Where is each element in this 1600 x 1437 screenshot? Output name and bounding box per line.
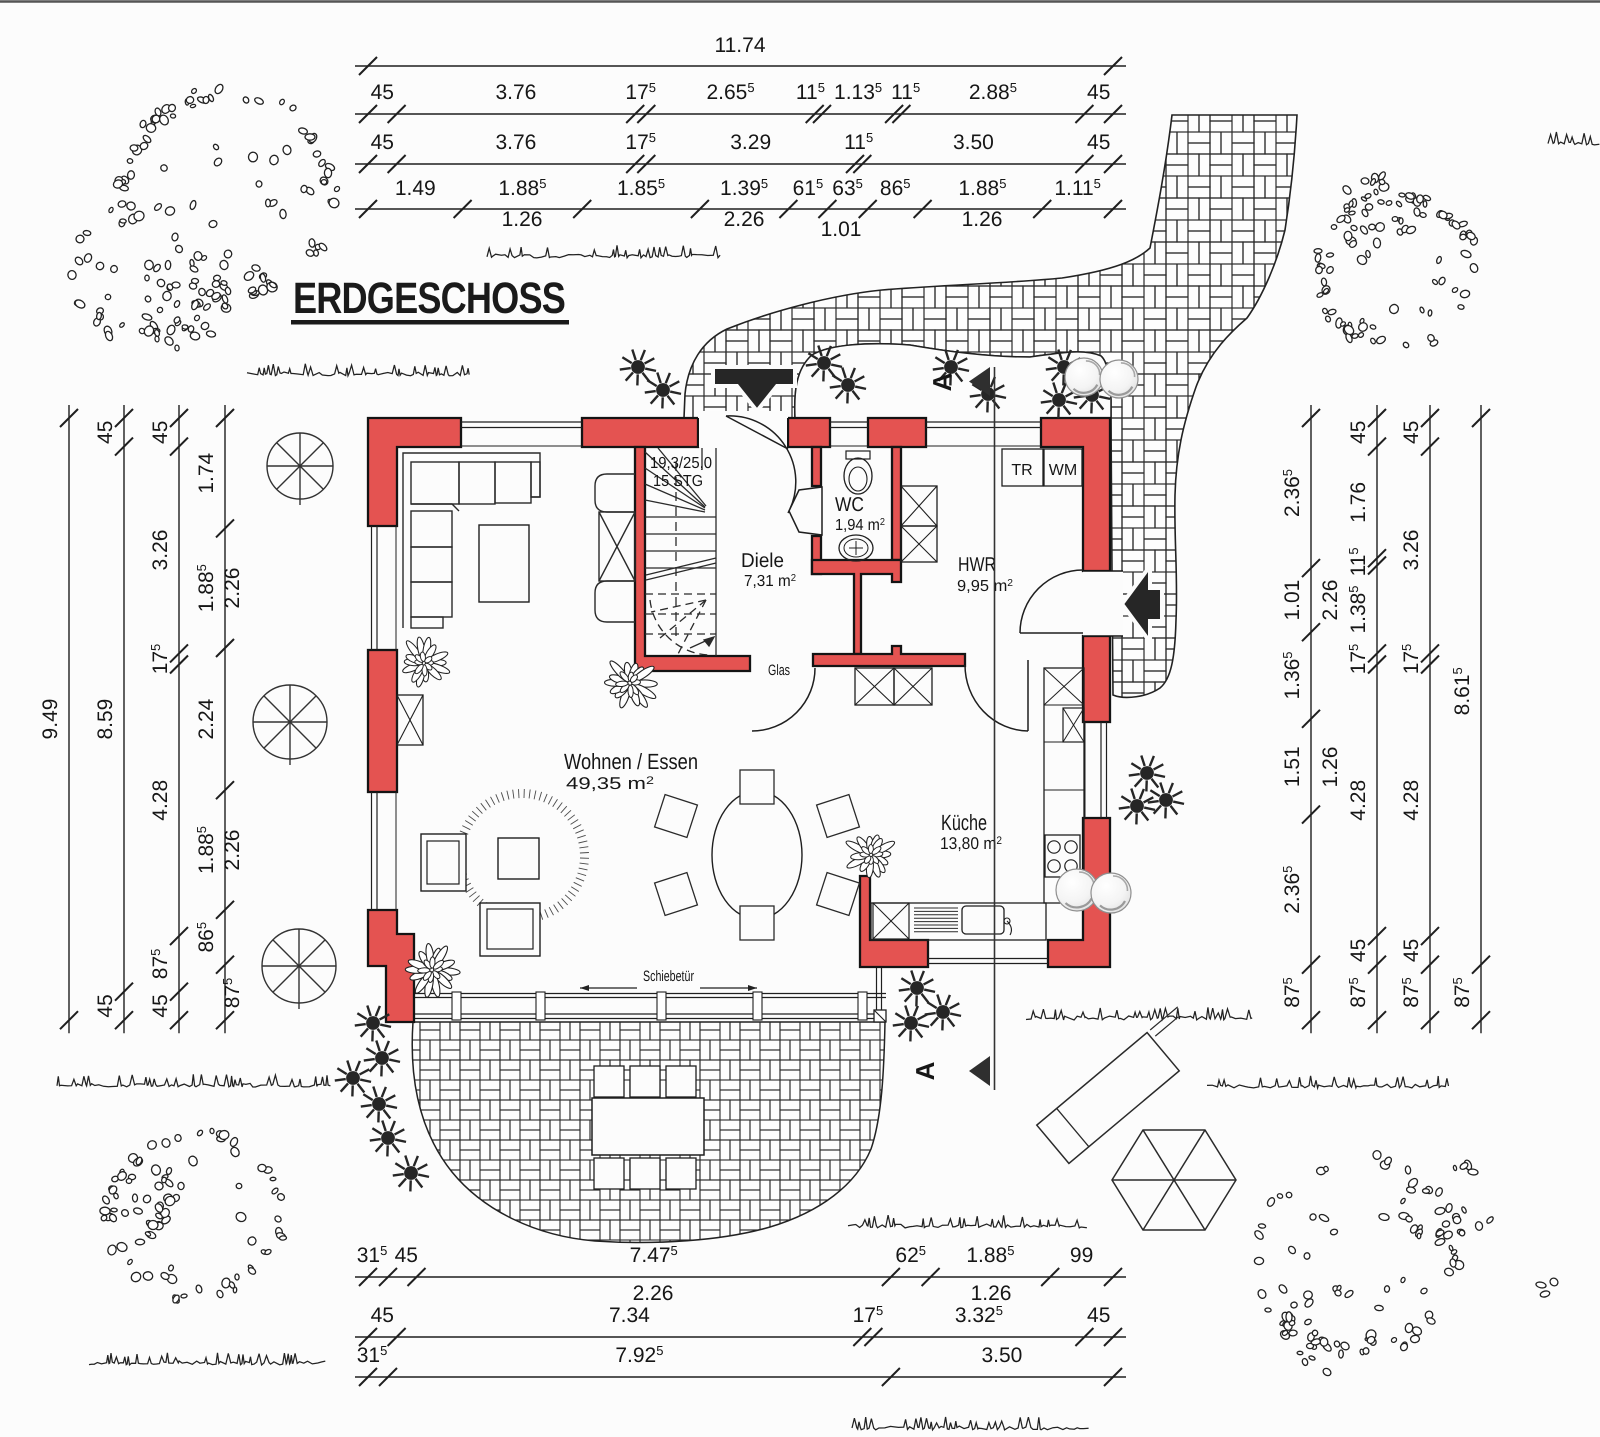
svg-text:1.26: 1.26 [962, 208, 1003, 231]
svg-text:3.50: 3.50 [981, 1344, 1022, 1367]
svg-text:3.29: 3.29 [730, 131, 771, 154]
svg-text:45: 45 [1087, 131, 1110, 154]
svg-text:45: 45 [1400, 939, 1423, 962]
svg-text:HWR: HWR [958, 554, 996, 576]
svg-text:2.26: 2.26 [633, 1282, 674, 1305]
svg-text:2.26: 2.26 [724, 208, 765, 231]
svg-text:99: 99 [1070, 1244, 1093, 1267]
svg-text:7,31 m2: 7,31 m2 [744, 573, 796, 590]
svg-text:2.24: 2.24 [195, 698, 218, 739]
svg-text:45: 45 [1347, 939, 1370, 962]
svg-text:WM: WM [1049, 462, 1077, 479]
svg-text:ERDGESCHOSS: ERDGESCHOSS [293, 274, 565, 323]
svg-text:1.26: 1.26 [971, 1282, 1012, 1305]
svg-text:1.74: 1.74 [195, 452, 218, 493]
svg-text:3.50: 3.50 [953, 131, 994, 154]
svg-text:13,80 m2: 13,80 m2 [940, 834, 1002, 853]
svg-text:19,3/25,0: 19,3/25,0 [650, 455, 712, 472]
svg-text:11.74: 11.74 [715, 34, 766, 57]
svg-text:Wohnen / Essen: Wohnen / Essen [564, 749, 698, 774]
svg-text:3.26: 3.26 [1400, 530, 1423, 571]
svg-text:49,35 m2: 49,35 m2 [566, 774, 654, 793]
svg-text:45: 45 [149, 421, 172, 444]
svg-text:3.76: 3.76 [495, 81, 536, 104]
svg-text:1,94 m2: 1,94 m2 [835, 517, 885, 534]
svg-text:3.76: 3.76 [495, 131, 536, 154]
svg-text:1.26: 1.26 [502, 208, 543, 231]
svg-text:45: 45 [371, 131, 394, 154]
svg-text:1.26: 1.26 [1319, 747, 1342, 788]
svg-text:45: 45 [395, 1244, 418, 1267]
svg-text:WC: WC [835, 494, 864, 516]
svg-text:A: A [910, 1061, 940, 1080]
svg-text:2.26: 2.26 [1319, 580, 1342, 621]
svg-text:15 STG: 15 STG [653, 473, 703, 490]
svg-text:4.28: 4.28 [1400, 780, 1423, 821]
svg-text:45: 45 [371, 1304, 394, 1327]
svg-text:2.26: 2.26 [221, 830, 244, 871]
svg-text:45: 45 [94, 994, 117, 1017]
svg-text:Glas: Glas [768, 662, 790, 679]
svg-text:1.01: 1.01 [1281, 580, 1304, 621]
svg-text:9,95 m2: 9,95 m2 [957, 578, 1013, 595]
svg-text:45: 45 [1400, 421, 1423, 444]
svg-text:1.49: 1.49 [395, 177, 436, 200]
svg-text:1.01: 1.01 [821, 218, 862, 241]
svg-text:9.49: 9.49 [39, 699, 62, 740]
svg-text:A: A [927, 372, 957, 391]
svg-text:8.59: 8.59 [94, 699, 117, 740]
svg-text:1.51: 1.51 [1281, 746, 1304, 787]
svg-text:45: 45 [94, 421, 117, 444]
svg-text:4.28: 4.28 [1347, 780, 1370, 821]
svg-text:2.26: 2.26 [221, 568, 244, 609]
svg-text:3.26: 3.26 [149, 530, 172, 571]
svg-text:7.34: 7.34 [609, 1304, 650, 1327]
svg-text:45: 45 [1087, 81, 1110, 104]
svg-text:45: 45 [371, 81, 394, 104]
svg-text:45: 45 [1087, 1304, 1110, 1327]
svg-text:1.76: 1.76 [1347, 482, 1370, 523]
svg-text:Schiebetür: Schiebetür [643, 968, 694, 985]
svg-text:45: 45 [1347, 421, 1370, 444]
svg-text:Diele: Diele [741, 550, 784, 572]
svg-text:4.28: 4.28 [149, 780, 172, 821]
svg-text:TR: TR [1011, 462, 1032, 479]
svg-text:Küche: Küche [941, 810, 987, 835]
svg-text:45: 45 [149, 994, 172, 1017]
